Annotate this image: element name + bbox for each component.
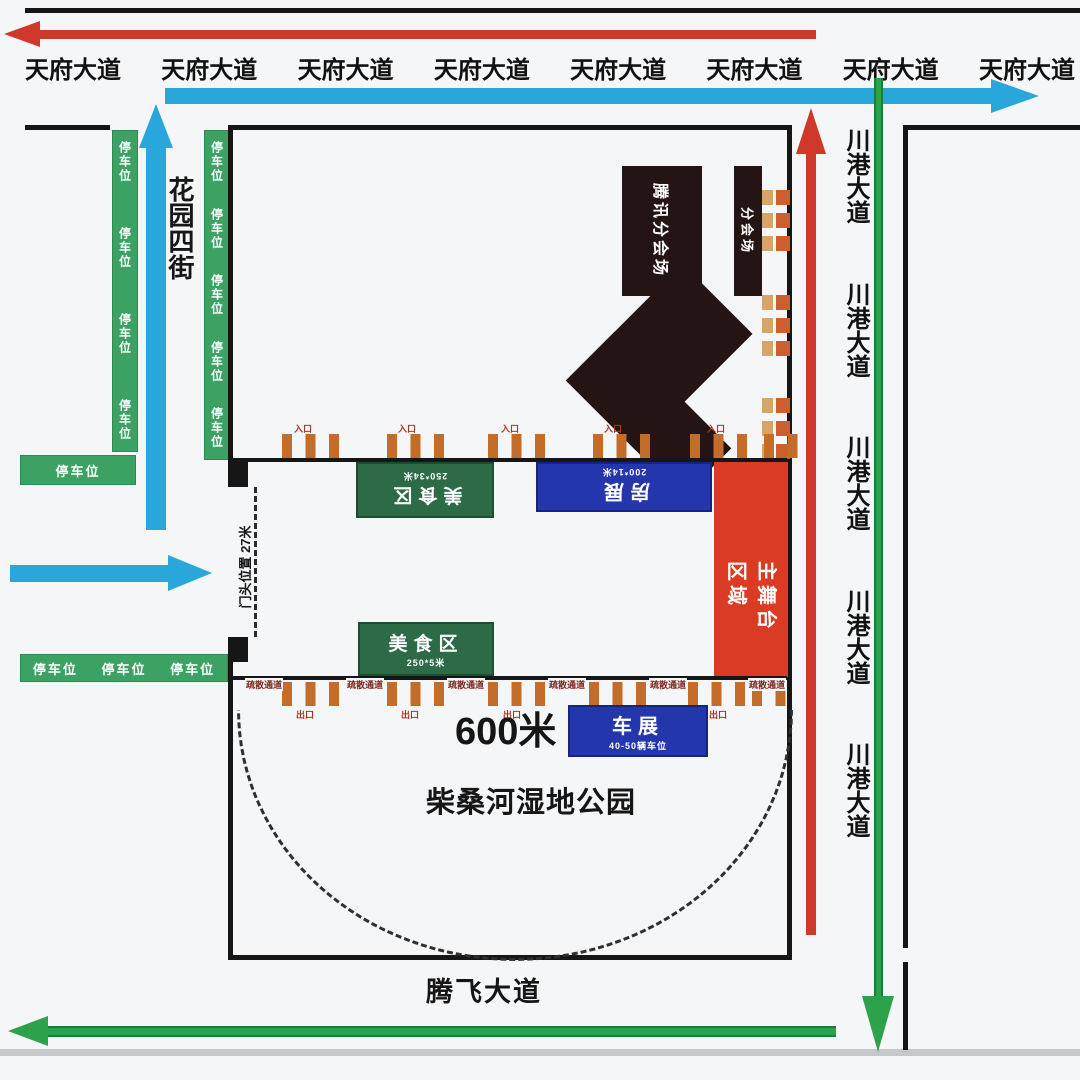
tianfu-avenue-label-row: 天府大道 天府大道 天府大道 天府大道 天府大道 天府大道 天府大道 天府大道	[25, 50, 1075, 78]
red-arrow-west-head-icon	[4, 21, 40, 47]
housing-expo-label: 房展	[598, 479, 650, 508]
food-zone-label: 美食区	[388, 483, 463, 510]
road-label-huayuan: 花园四街	[162, 176, 199, 280]
subvenue-block: 分会场	[734, 166, 762, 296]
road-label-tianfu: 天府大道	[570, 50, 666, 78]
green-arrow-west-shaft	[46, 1026, 836, 1037]
road-label-tianfu: 天府大道	[843, 50, 939, 78]
venue-top-edge	[228, 125, 792, 130]
parking-label: 停车位	[55, 461, 100, 480]
car-expo-label: 车展	[612, 710, 664, 739]
parking-strip-west-2: 停车位 停车位 停车位 停车位 停车位	[204, 130, 230, 460]
road-label-tianfu: 天府大道	[434, 50, 530, 78]
gate-barriers	[387, 682, 444, 706]
right-block-left-edge	[903, 125, 908, 948]
road-label-chuangang: 川港大道	[838, 282, 873, 378]
entrance-corner-block-top	[228, 462, 248, 487]
road-label-chuangang: 川港大道	[838, 742, 873, 838]
parking-label: 停车位	[117, 141, 134, 183]
parking-label: 停车位	[33, 659, 78, 678]
bottom-gray-line	[0, 1049, 1080, 1056]
food-zone-size: 250*34米	[403, 470, 448, 483]
evac-channel-label: 疏散通道	[245, 678, 283, 691]
corridor-lower-line	[233, 676, 787, 680]
road-label-tianfu: 天府大道	[25, 50, 121, 78]
parking-label: 停车位	[117, 313, 134, 355]
car-expo-box: 车展 40-50辆车位	[568, 705, 708, 757]
gate-barriers	[593, 434, 650, 458]
gate-barrier-pair	[762, 295, 790, 310]
evac-channel-label: 疏散通道	[346, 678, 384, 691]
gate-barriers	[589, 682, 646, 706]
gate-barrier-pair	[762, 318, 790, 333]
road-label-tengfei: 腾飞大道	[426, 970, 542, 1009]
gate-barrier-pair	[762, 190, 790, 205]
blue-arrow-east-shaft	[165, 88, 993, 104]
evac-channel-label: 疏散通道	[447, 678, 485, 691]
evac-channel-label: 疏散通道	[748, 678, 786, 691]
gate-barrier-pair	[762, 236, 790, 251]
gate-barrier-pair	[762, 341, 790, 356]
green-arrow-south-shaft	[874, 78, 883, 998]
main-stage-label: 主舞台 区域	[721, 561, 781, 633]
gate-in-label: 入口	[398, 422, 416, 435]
gate-in-label: 入口	[707, 422, 725, 435]
evac-channel-label: 疏散通道	[649, 678, 687, 691]
blue-arrow-entrance-shaft	[10, 565, 170, 582]
food-zone-label: 美食区	[388, 629, 463, 656]
venue-left-edge-lower	[228, 662, 233, 960]
corridor-length-label: 600米	[455, 700, 556, 755]
right-block-top-edge	[903, 125, 1080, 130]
road-label-tianfu: 天府大道	[706, 50, 802, 78]
parking-strip-west-stub: 停车位	[20, 455, 136, 485]
gate-barriers	[387, 434, 444, 458]
red-arrow-west-shaft	[38, 30, 816, 39]
road-label-chuangang: 川港大道	[838, 435, 873, 531]
blue-arrow-entrance-head-icon	[168, 555, 212, 591]
red-arrow-north-head-icon	[796, 108, 826, 154]
road-label-chuangang: 川港大道	[838, 128, 873, 224]
road-label-tianfu: 天府大道	[161, 50, 257, 78]
tencent-subvenue-label: 腾讯分会场	[650, 183, 674, 278]
parking-label: 停车位	[209, 208, 226, 250]
road-label-chuangang: 川港大道	[838, 589, 873, 685]
blue-arrow-north-head-icon	[139, 104, 173, 148]
event-site-map: 天府大道 天府大道 天府大道 天府大道 天府大道 天府大道 天府大道 天府大道 …	[0, 0, 1080, 1080]
gate-barrier-pair	[762, 398, 790, 413]
food-zone-bottom-box: 美食区 250*5米	[358, 622, 494, 676]
gate-in-label: 入口	[294, 422, 312, 435]
chuangang-avenue-label-column: 川港大道 川港大道 川港大道 川港大道 川港大道	[838, 128, 873, 838]
gate-in-label: 入口	[604, 422, 622, 435]
road-label-tianfu: 天府大道	[979, 50, 1075, 78]
car-expo-size: 40-50辆车位	[609, 739, 667, 752]
top-road-edge-line	[25, 8, 1080, 13]
parking-label: 停车位	[209, 141, 226, 183]
parking-label: 停车位	[117, 399, 134, 441]
parking-label: 停车位	[101, 659, 146, 678]
left-block-top-line	[25, 125, 110, 130]
food-zone-top-box: 美食区 250*34米	[356, 462, 494, 518]
parking-label: 停车位	[170, 659, 215, 678]
blue-arrow-east-head-icon	[991, 79, 1039, 113]
venue-left-edge-upper	[228, 125, 233, 462]
green-arrow-west-head-icon	[8, 1016, 48, 1046]
right-block-left-edge-lower	[903, 962, 908, 1050]
parking-strip-west-bottom: 停车位 停车位 停车位	[20, 654, 228, 682]
entrance-width-note: 门头位置 27米	[235, 507, 259, 627]
gate-barrier-pair	[762, 213, 790, 228]
parking-label: 停车位	[209, 341, 226, 383]
subvenue-label: 分会场	[739, 207, 758, 255]
main-stage-box: 主舞台 区域	[714, 462, 788, 677]
parking-label: 停车位	[209, 274, 226, 316]
parking-strip-west-1: 停车位 停车位 停车位 停车位	[112, 130, 138, 452]
evac-channel-label: 疏散通道	[548, 678, 586, 691]
gate-barriers	[488, 434, 545, 458]
road-label-tianfu: 天府大道	[298, 50, 394, 78]
entrance-corner-block-bottom	[228, 637, 248, 662]
housing-expo-size: 200*14米	[602, 466, 647, 479]
parking-label: 停车位	[209, 407, 226, 449]
gate-barriers	[688, 682, 745, 706]
gate-barriers	[282, 434, 339, 458]
food-zone-size: 250*5米	[407, 656, 446, 669]
housing-expo-box: 房展 200*14米	[536, 462, 712, 512]
red-arrow-north-shaft	[806, 152, 816, 935]
gate-barriers	[690, 434, 747, 458]
gate-barriers	[282, 682, 339, 706]
gate-barriers	[764, 434, 800, 458]
gate-in-label: 入口	[501, 422, 519, 435]
park-name-label: 柴桑河湿地公园	[426, 779, 636, 821]
parking-label: 停车位	[117, 227, 134, 269]
green-arrow-south-head-icon	[862, 996, 894, 1052]
